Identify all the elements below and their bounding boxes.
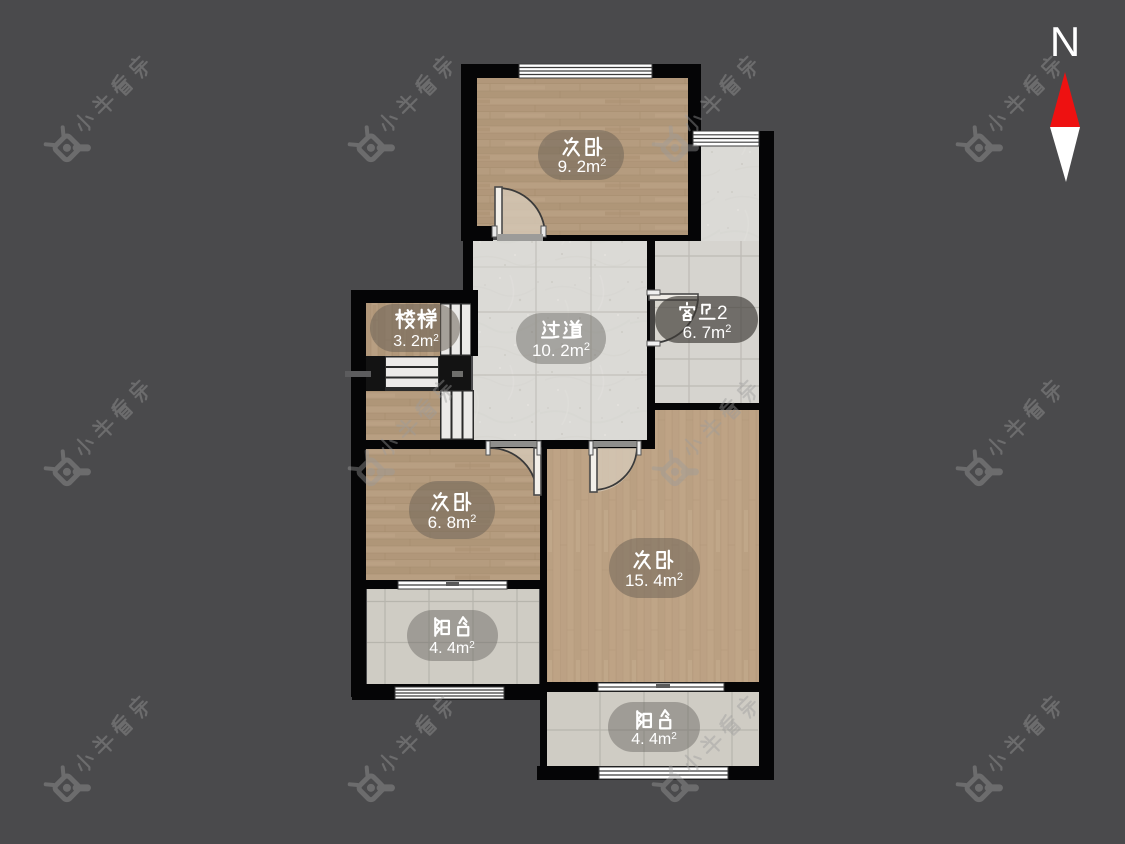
svg-text:9. 2m2: 9. 2m2 <box>558 157 607 176</box>
svg-text:2: 2 <box>717 303 728 324</box>
svg-text:6. 7m2: 6. 7m2 <box>683 323 732 342</box>
svg-text:10. 2m2: 10. 2m2 <box>532 341 590 360</box>
svg-text:4. 4m2: 4. 4m2 <box>631 731 677 748</box>
svg-text:6. 8m2: 6. 8m2 <box>428 513 477 532</box>
svg-text:3. 2m2: 3. 2m2 <box>393 333 439 350</box>
svg-text:N: N <box>1050 18 1080 65</box>
svg-text:15. 4m2: 15. 4m2 <box>625 571 683 590</box>
svg-text:4. 4m2: 4. 4m2 <box>429 640 475 657</box>
